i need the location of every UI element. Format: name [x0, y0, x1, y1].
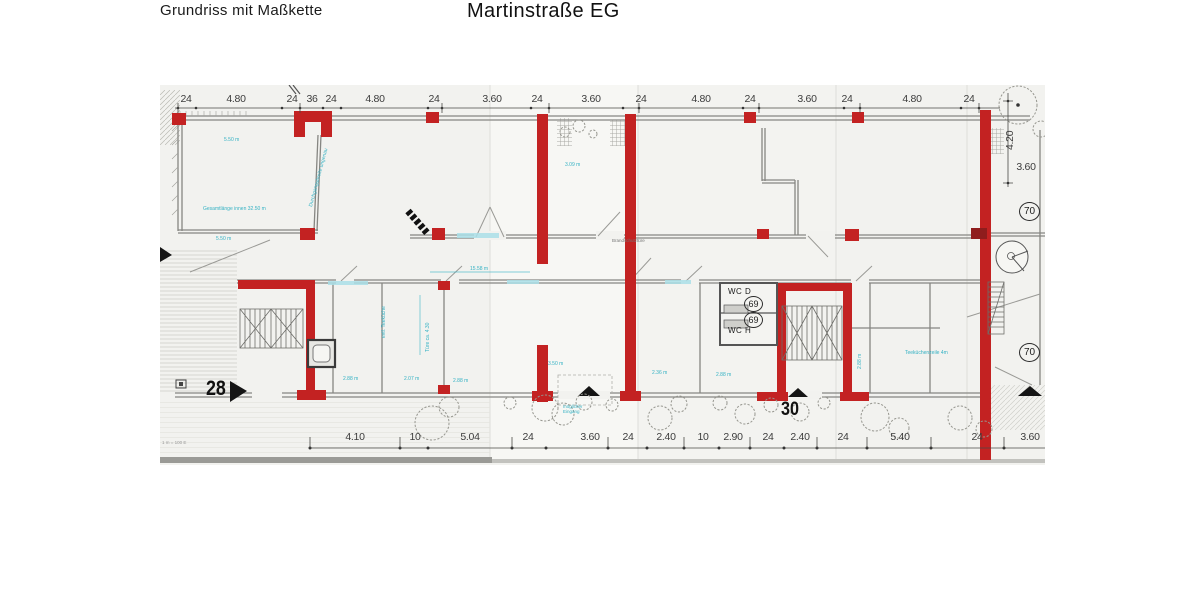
- dim-label: 5.04: [454, 431, 486, 443]
- dim-label: 4.80: [220, 93, 252, 105]
- annotation: evtl. Teeküche: [381, 306, 387, 338]
- annotation: Gesamtlänge innen 32.50 m: [203, 206, 266, 212]
- dim-label: 24: [315, 93, 347, 105]
- dim-label: 24: [625, 93, 657, 105]
- dim-label: 3.60: [574, 431, 606, 443]
- dim-label: 10: [399, 431, 431, 443]
- sink-unit: [308, 340, 335, 367]
- annotation: 3.09 m: [565, 162, 580, 168]
- wc-damen-label: WC D: [728, 287, 751, 296]
- dim-label-vertical: 4.20: [1004, 131, 1016, 150]
- dim-label: 24: [961, 431, 993, 443]
- annotation: 2.88 m: [453, 378, 468, 384]
- annotation: 2.36 m: [652, 370, 667, 376]
- dim-label: 2.90: [717, 431, 749, 443]
- dim-label: 3.60: [791, 93, 823, 105]
- annotation: 2.88 m: [343, 376, 358, 382]
- room-number-badge: 70: [1019, 343, 1040, 362]
- floorplan-page: Grundriss mit Maßkette Martinstraße EG: [0, 0, 1200, 600]
- dim-label: 4.80: [685, 93, 717, 105]
- dim-label: 24: [512, 431, 544, 443]
- wc-herren-label: WC H: [728, 326, 751, 335]
- dim-label: 24: [831, 93, 863, 105]
- dim-label: 24: [827, 431, 859, 443]
- annotation: 2.88 m: [857, 354, 863, 369]
- floorplan-drawing: [160, 85, 1045, 465]
- annotation: Teeküchenzeile 4m: [905, 350, 948, 356]
- dim-label: 4.10: [339, 431, 371, 443]
- dim-label: 3.60: [575, 93, 607, 105]
- dim-label: 2.40: [784, 431, 816, 443]
- dim-label: 4.80: [896, 93, 928, 105]
- annotation: 5.50 m: [216, 236, 231, 242]
- dim-label: 24: [752, 431, 784, 443]
- house-number-30: 30: [781, 399, 799, 421]
- dim-label: 24: [734, 93, 766, 105]
- annotation: Türe ca. 4.30: [425, 323, 431, 352]
- dim-label: 3.60: [1010, 161, 1042, 173]
- fire-door-note: Brandschutztüre: [612, 238, 645, 243]
- dim-label: 24: [418, 93, 450, 105]
- house-number-28: 28: [206, 377, 226, 401]
- drawing-subtitle: Grundriss mit Maßkette: [160, 2, 322, 19]
- annotation: möglicher Eingang: [563, 404, 599, 414]
- annotation: 5.50 m: [224, 137, 239, 143]
- dim-label: 24: [953, 93, 985, 105]
- dim-label: 4.80: [359, 93, 391, 105]
- room-number-badge: 70: [1019, 202, 1040, 221]
- scale-note: 1 m = 100 E: [162, 440, 186, 445]
- annotation: 2.07 m: [404, 376, 419, 382]
- page-title: Martinstraße EG: [467, 0, 620, 23]
- room-number-badge: 69: [744, 296, 763, 312]
- dim-label: 2.40: [650, 431, 682, 443]
- dim-label: 24: [612, 431, 644, 443]
- dim-label: 3.60: [1014, 431, 1046, 443]
- dim-label: 5.40: [884, 431, 916, 443]
- dim-label: 24: [170, 93, 202, 105]
- dim-label: 24: [521, 93, 553, 105]
- annotation: 3.50 m: [548, 361, 563, 367]
- spiral-stair: [996, 241, 1028, 273]
- annotation: 2.88 m: [716, 372, 731, 378]
- dim-label: 3.60: [476, 93, 508, 105]
- annotation: 15.58 m: [470, 266, 488, 272]
- dim-label: 10: [687, 431, 719, 443]
